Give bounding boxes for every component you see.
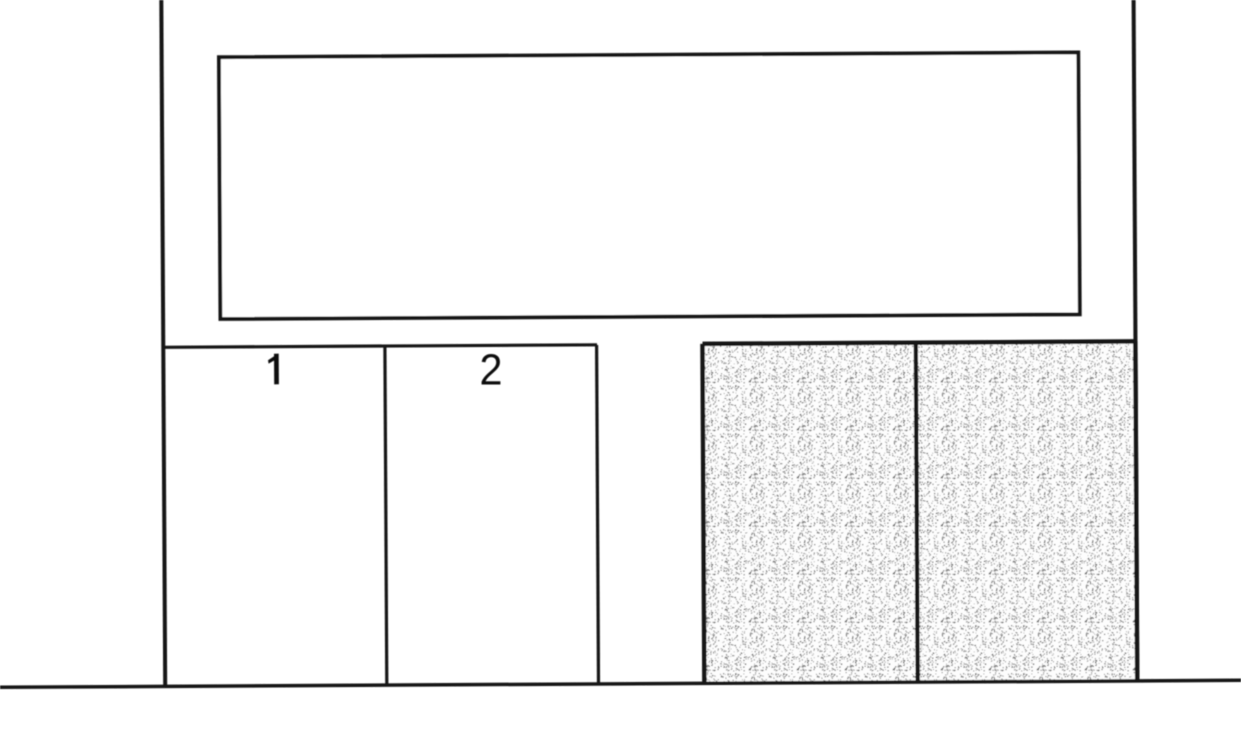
svg-text:2: 2	[480, 346, 503, 394]
